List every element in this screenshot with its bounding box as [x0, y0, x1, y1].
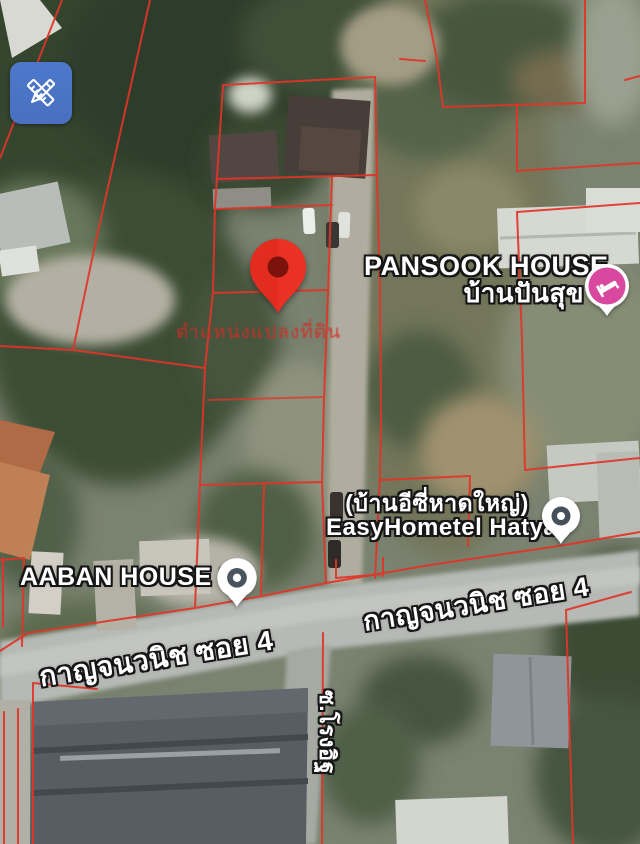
road-label-soi-rong-it: ซ.โรงอิฐ — [315, 690, 338, 774]
poi-easyhometel-title: (บ้านอีซี่หาดใหญ่) — [345, 490, 528, 516]
parcel-location-note: ตำแหน่งแปลงที่ดิน — [176, 317, 376, 347]
map-canvas[interactable]: ตำแหน่งแปลงที่ดิน PANSOOK HOUSE บ้านปันส… — [0, 0, 640, 844]
poi-pansook-label: PANSOOK HOUSE บ้านปันสุข — [364, 252, 586, 307]
poi-pansook-title: PANSOOK HOUSE — [364, 251, 609, 281]
draw-tools-button[interactable] — [10, 62, 72, 124]
place-pin-icon[interactable] — [539, 495, 583, 547]
place-pin-icon[interactable] — [214, 556, 260, 610]
poi-easyhometel-subtitle: EasyHometel Hatyai — [326, 516, 548, 541]
pencil-ruler-icon — [22, 74, 60, 112]
poi-pansook-subtitle: บ้านปันสุข — [364, 280, 586, 307]
lodging-pin-icon[interactable] — [582, 262, 632, 320]
poi-easyhometel-label: (บ้านอีซี่หาดใหญ่) EasyHometel Hatyai — [326, 492, 548, 541]
selected-location-pin[interactable] — [246, 237, 310, 317]
